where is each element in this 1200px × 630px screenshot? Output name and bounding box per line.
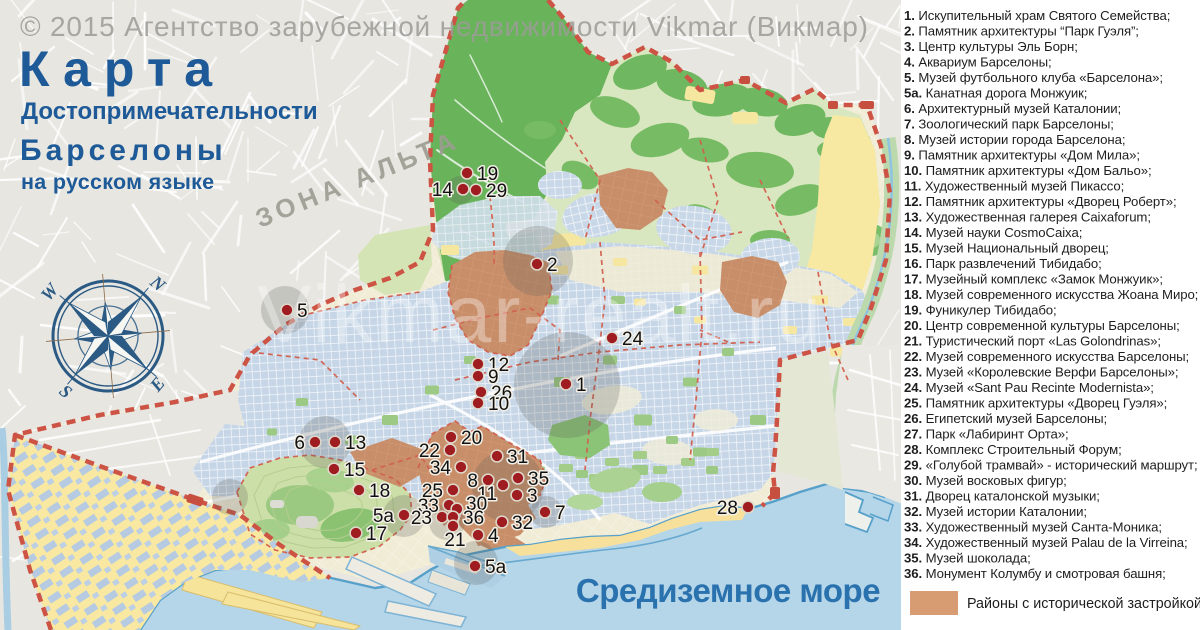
svg-text:31. Дворец каталонской музыки;: 31. Дворец каталонской музыки; (904, 489, 1100, 504)
svg-text:5a: 5a (485, 557, 507, 578)
svg-text:12. Памятник архитектуры «Двор: 12. Памятник архитектуры «Дворец Роберт»… (904, 194, 1177, 209)
svg-text:31: 31 (507, 447, 528, 468)
svg-text:16. Парк развлечений Тибидабо;: 16. Парк развлечений Тибидабо; (904, 256, 1102, 271)
svg-text:23: 23 (411, 508, 432, 529)
svg-text:© 2015 Агентство зарубежной не: © 2015 Агентство зарубежной недвижимости… (20, 11, 869, 42)
svg-text:Барселоны: Барселоны (20, 134, 227, 167)
svg-text:7. Зоологический парк Барселон: 7. Зоологический парк Барселоны; (904, 117, 1114, 132)
svg-text:18. Музей современного искусст: 18. Музей современного искусства Жоана М… (904, 287, 1198, 302)
svg-text:27. Парк «Лабиринт Орта»;: 27. Парк «Лабиринт Орта»; (904, 427, 1069, 442)
svg-text:34. Художественный музей Palau: 34. Художественный музей Palau de la Vir… (904, 535, 1188, 550)
svg-text:30. Музей восковых фигур;: 30. Музей восковых фигур; (904, 473, 1067, 488)
svg-text:7: 7 (555, 503, 566, 524)
svg-text:21: 21 (444, 530, 465, 551)
svg-text:14. Музей науки CosmoCaixa;: 14. Музей науки CosmoCaixa; (904, 225, 1082, 240)
svg-text:9. Памятник архитектуры «Дом М: 9. Памятник архитектуры «Дом Мила»; (904, 148, 1140, 163)
svg-text:Средиземное море: Средиземное море (576, 572, 880, 609)
svg-text:Карта: Карта (19, 41, 225, 97)
svg-text:15. Музей Национальный дворец;: 15. Музей Национальный дворец; (904, 241, 1109, 256)
svg-text:29: 29 (486, 181, 507, 202)
svg-text:23. Музей «Королевские Верфи Б: 23. Музей «Королевские Верфи Барселоны»; (904, 365, 1178, 380)
svg-text:на русском языке: на русском языке (21, 170, 214, 194)
svg-text:36: 36 (463, 508, 484, 529)
svg-text:28. Комплекс Строительный Фору: 28. Комплекс Строительный Форум; (904, 442, 1122, 457)
svg-text:1. Искупительный храм Святого: 1. Искупительный храм Святого Семейства; (904, 8, 1170, 23)
svg-text:19. Фуникулер Тибидабо;: 19. Фуникулер Тибидабо; (904, 303, 1057, 318)
svg-text:26. Египетский музей Барселоны: 26. Египетский музей Барселоны; (904, 411, 1107, 426)
svg-text:20: 20 (461, 428, 482, 449)
svg-text:8. Музей истории города Барсел: 8. Музей истории города Барселона; (904, 132, 1125, 147)
svg-text:24: 24 (622, 329, 644, 350)
svg-text:Vikmar-realt.ru: Vikmar-realt.ru (257, 269, 823, 360)
svg-text:13. Художественная галерея Cai: 13. Художественная галерея Caixaforum; (904, 210, 1151, 225)
svg-text:4. Аквариум Барселоны;: 4. Аквариум Барселоны; (904, 55, 1052, 70)
svg-text:28: 28 (717, 498, 738, 519)
svg-text:1: 1 (576, 375, 587, 396)
svg-text:17. Музейный комплекс «Замок М: 17. Музейный комплекс «Замок Монжуик»; (904, 272, 1163, 287)
svg-text:2. Памятник архитектуры “Парк: 2. Памятник архитектуры “Парк Гуэля”; (904, 24, 1139, 39)
svg-text:21. Туристический порт «Las Go: 21. Туристический порт «Las Golondrinas»… (904, 334, 1161, 349)
svg-text:18: 18 (369, 481, 390, 502)
svg-text:5a. Канатная дорога Монжуик;: 5a. Канатная дорога Монжуик; (904, 86, 1087, 101)
svg-text:5. Музей футбольного клуба «Ба: 5. Музей футбольного клуба «Барселона»; (904, 70, 1163, 85)
svg-text:10. Памятник архитектуры «Дом: 10. Памятник архитектуры «Дом Бальо»; (904, 163, 1152, 178)
svg-text:29. «Голубой трамвай» - истори: 29. «Голубой трамвай» - исторический мар… (904, 458, 1198, 473)
svg-text:5: 5 (297, 301, 308, 322)
svg-text:4: 4 (488, 526, 499, 547)
svg-text:11. Художественный музей Пикас: 11. Художественный музей Пикассо; (904, 179, 1124, 194)
svg-text:3: 3 (527, 486, 538, 507)
svg-text:25. Памятник архитектуры «Двор: 25. Памятник архитектуры «Дворец Гуэля»; (904, 396, 1167, 411)
svg-text:32: 32 (512, 513, 533, 534)
svg-text:14: 14 (432, 180, 454, 201)
svg-text:33. Художественный музей Санта: 33. Художественный музей Санта-Моника; (904, 520, 1162, 535)
svg-text:36. Монумент Колумбу и смотров: 36. Монумент Колумбу и смотровая башня; (904, 566, 1166, 581)
svg-text:10: 10 (488, 394, 509, 415)
svg-text:22. Музей современного искусст: 22. Музей современного искусства Барсело… (904, 349, 1189, 364)
svg-text:2: 2 (547, 255, 558, 276)
svg-text:24. Музей «Sant Pau Recinte Mo: 24. Музей «Sant Pau Recinte Modernista»; (904, 380, 1154, 395)
svg-text:3. Центр культуры Эль Борн;: 3. Центр культуры Эль Борн; (904, 39, 1078, 54)
svg-text:20. Центр современной культуры: 20. Центр современной культуры Барселоны… (904, 318, 1180, 333)
svg-text:17: 17 (366, 524, 387, 545)
svg-text:Районы с исторической застройк: Районы с исторической застройкой (967, 596, 1200, 612)
svg-text:13: 13 (345, 433, 366, 454)
svg-text:15: 15 (344, 460, 365, 481)
svg-text:6: 6 (294, 433, 305, 454)
svg-text:34: 34 (430, 458, 452, 479)
svg-text:Достопримечательности: Достопримечательности (21, 98, 318, 125)
svg-text:32. Музей истории Каталонии;: 32. Музей истории Каталонии; (904, 504, 1087, 519)
svg-text:35. Музей шоколада;: 35. Музей шоколада; (904, 551, 1031, 566)
svg-text:6. Архитектурный музей Каталон: 6. Архитектурный музей Каталонии; (904, 101, 1121, 116)
